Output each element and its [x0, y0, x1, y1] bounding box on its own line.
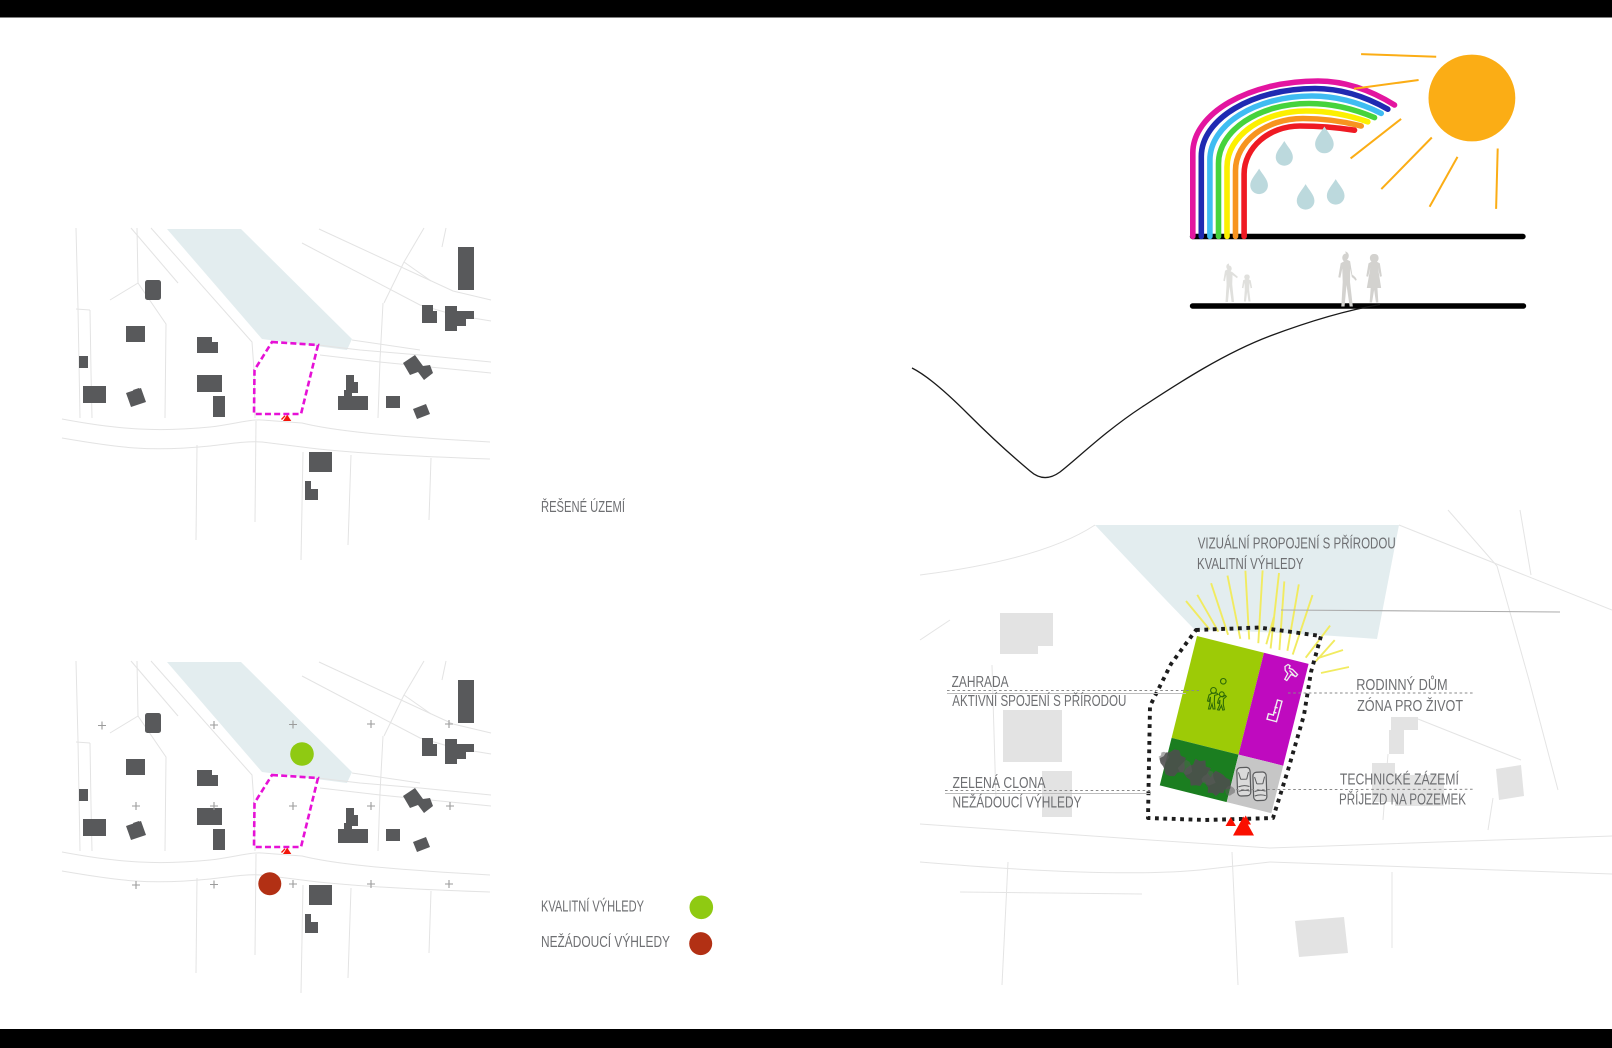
- svg-text:KVALITNÍ VÝHLEDY: KVALITNÍ VÝHLEDY: [1197, 554, 1304, 573]
- svg-text:KVALITNÍ VÝHLEDY: KVALITNÍ VÝHLEDY: [541, 899, 644, 916]
- svg-text:NEŽÁDOUCÍ VÝHLEDY: NEŽÁDOUCÍ VÝHLEDY: [953, 795, 1082, 812]
- svg-text:ZAHRADA: ZAHRADA: [952, 674, 1009, 691]
- svg-text:TECHNICKÉ ZÁZEMÍ: TECHNICKÉ ZÁZEMÍ: [1340, 772, 1460, 789]
- svg-text:ZELENÁ CLONA: ZELENÁ CLONA: [953, 775, 1047, 792]
- svg-text:ZÓNA PRO ŽIVOT: ZÓNA PRO ŽIVOT: [1357, 698, 1463, 715]
- svg-text:PŘÍJEZD NA POZEMEK: PŘÍJEZD NA POZEMEK: [1339, 792, 1466, 809]
- svg-text:NEŽÁDOUCÍ VÝHLEDY: NEŽÁDOUCÍ VÝHLEDY: [541, 934, 670, 951]
- svg-text:AKTIVNÍ SPOJENÍ S PŘÍRODOU: AKTIVNÍ SPOJENÍ S PŘÍRODOU: [952, 693, 1126, 710]
- svg-text:VIZUÁLNÍ PROPOJENÍ S PŘÍRODOU: VIZUÁLNÍ PROPOJENÍ S PŘÍRODOU: [1198, 534, 1396, 553]
- svg-text:RODINNÝ DŮM: RODINNÝ DŮM: [1356, 676, 1448, 694]
- svg-text:ŘEŠENÉ ÚZEMÍ: ŘEŠENÉ ÚZEMÍ: [541, 499, 626, 516]
